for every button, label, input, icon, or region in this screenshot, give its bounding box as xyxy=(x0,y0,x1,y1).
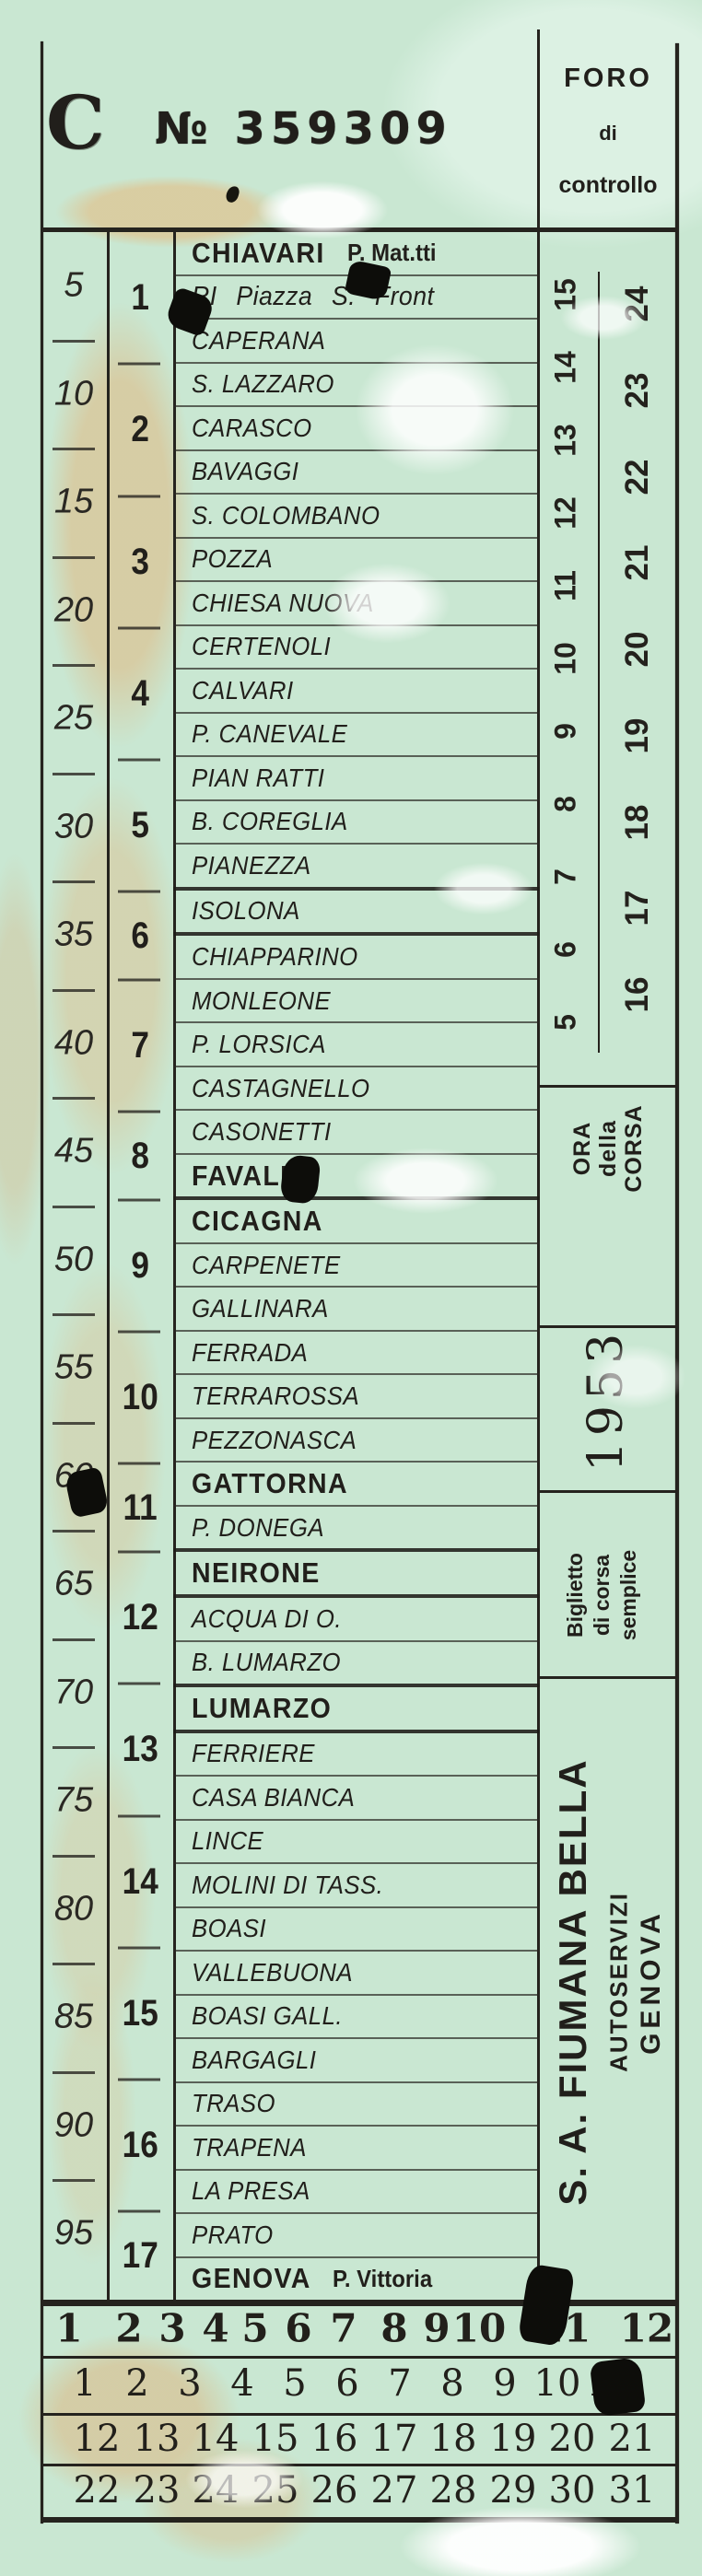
station-name: MONLEONE xyxy=(192,986,331,1016)
hour-mark-15: 15 xyxy=(549,278,583,311)
station-name: TRASO xyxy=(192,2089,275,2118)
station-row: CHIESA NUOVA xyxy=(173,582,540,626)
scale-number: 5 xyxy=(41,266,107,306)
hour-mark-21: 21 xyxy=(619,545,656,581)
station-row: PIANEZZA xyxy=(173,845,540,891)
station-name: TERRAROSSA xyxy=(192,1381,359,1411)
grid-number: 5 xyxy=(283,2362,306,2405)
scale-number: 80 xyxy=(41,1889,107,1929)
grid-number: 15 xyxy=(252,2418,299,2460)
grid-number: 25 xyxy=(252,2469,299,2512)
scale-tick xyxy=(53,1746,95,1749)
station-name: CHIAVARI xyxy=(192,237,325,270)
scale-number: 25 xyxy=(41,699,107,739)
zone-5: 5 xyxy=(107,760,173,892)
station-suffix: P. Vittoria xyxy=(333,2265,432,2293)
company-genova: GENOVA xyxy=(636,1909,667,2055)
station-row: B. LUMARZO xyxy=(173,1642,540,1688)
grid-number: 23 xyxy=(134,2469,181,2512)
grid-number: 27 xyxy=(371,2469,418,2512)
station-name: P. DONEGA xyxy=(192,1513,324,1543)
station-row: P. CANEVALE xyxy=(173,714,540,758)
station-name: GENOVA xyxy=(192,2262,311,2295)
station-name: B. LUMARZO xyxy=(192,1648,341,1677)
della-line: della xyxy=(595,1104,621,1192)
biglietto-line: Biglietto xyxy=(562,1550,589,1640)
grid-number: 12 xyxy=(620,2306,673,2351)
scale-tick xyxy=(53,773,95,775)
scale-number: 30 xyxy=(41,807,107,846)
station-row: VALLEBUONA xyxy=(173,1952,540,1996)
hour-mark-19: 19 xyxy=(619,717,656,753)
company-name: S. A. FIUMANA BELLA xyxy=(551,1758,595,2205)
scale-number: 65 xyxy=(41,1565,107,1604)
station-name: ISOLONA xyxy=(192,896,300,926)
station-name: CASONETTI xyxy=(192,1117,332,1147)
station-name: BOASI xyxy=(192,1914,266,1943)
station-name: CARASCO xyxy=(192,414,312,443)
grid-number: 10 xyxy=(452,2306,506,2351)
zone-14: 14 xyxy=(107,1816,173,1948)
grid-number: 20 xyxy=(549,2418,596,2460)
station-row: CAPERANA xyxy=(173,320,540,364)
scale-number: 40 xyxy=(41,1023,107,1063)
station-row: TERRAROSSA xyxy=(173,1375,540,1419)
right-column: ORA della CORSA 1953 Biglietto di corsa … xyxy=(540,232,676,2300)
hour-mark-24: 24 xyxy=(619,286,656,322)
semplice-line: semplice xyxy=(614,1550,641,1640)
station-name: LINCE xyxy=(192,1826,263,1856)
foro-label: FORO xyxy=(564,64,652,94)
scale-number: 15 xyxy=(41,483,107,522)
zone-number: 3 xyxy=(131,542,149,583)
hour-mark-14: 14 xyxy=(549,351,583,384)
ora-della-corsa-label: ORA della CORSA xyxy=(569,1104,647,1192)
hour-mark-18: 18 xyxy=(619,804,656,840)
scale-tick xyxy=(53,1422,95,1425)
station-row: CARPENETE xyxy=(173,1244,540,1288)
station-row: CASTAGNELLO xyxy=(173,1067,540,1112)
station-row: LUMARZO xyxy=(173,1687,540,1733)
station-name: NEIRONE xyxy=(192,1556,321,1590)
grid-number: 3 xyxy=(178,2362,201,2405)
zone-number: 2 xyxy=(131,409,149,450)
grid-number: 9 xyxy=(423,2306,450,2351)
hour-mark-11: 11 xyxy=(549,570,583,601)
station-name: MOLINI DI TASS. xyxy=(192,1871,383,1900)
station-name: LA PRESA xyxy=(192,2176,310,2206)
zone-number: 13 xyxy=(122,1729,158,1770)
di-corsa-line: di corsa xyxy=(589,1550,615,1640)
grid-number: 9 xyxy=(493,2362,516,2405)
station-name: CERTENOLI xyxy=(192,632,331,661)
station-name: VALLEBUONA xyxy=(192,1958,353,1987)
station-row: MOLINI DI TASS. xyxy=(173,1864,540,1908)
scale-tick xyxy=(53,2071,95,2074)
grid-number: 26 xyxy=(311,2469,358,2512)
station-row: P. LORSICA xyxy=(173,1023,540,1067)
station-row: CASA BIANCA xyxy=(173,1777,540,1821)
station-row: BOASI xyxy=(173,1908,540,1952)
scale-number: 85 xyxy=(41,1998,107,2037)
station-name: BAVAGGI xyxy=(192,457,298,486)
scale-number: 55 xyxy=(41,1348,107,1388)
zone-9: 9 xyxy=(107,1200,173,1332)
station-name: S. COLOMBANO xyxy=(192,501,380,530)
station-name: PEZZONASCA xyxy=(192,1426,357,1455)
station-name: POZZA xyxy=(192,544,273,574)
zone-12: 12 xyxy=(107,1552,173,1684)
grid-rule-2 xyxy=(41,2413,679,2416)
grid-number: 8 xyxy=(440,2362,463,2405)
scale-number: 35 xyxy=(41,915,107,955)
hour-mark-22: 22 xyxy=(619,459,656,495)
zone-16: 16 xyxy=(107,2080,173,2211)
punch-hole xyxy=(590,2357,647,2417)
station-name: P. LORSICA xyxy=(192,1030,326,1059)
station-name: B. COREGLIA xyxy=(192,807,348,836)
grid-number: 30 xyxy=(549,2469,596,2512)
zone-10: 10 xyxy=(107,1332,173,1463)
grid-number: 10 xyxy=(534,2362,581,2405)
station-name: ACQUA DI O. xyxy=(192,1604,342,1634)
scale-tick xyxy=(53,1855,95,1858)
foro-label-di: di xyxy=(599,122,617,146)
hour-mark-17: 17 xyxy=(619,891,656,927)
grid-number: 12 xyxy=(74,2418,121,2460)
station-row: ACQUA DI O. xyxy=(173,1598,540,1642)
grid-number: 22 xyxy=(74,2469,121,2512)
zone-13: 13 xyxy=(107,1684,173,1815)
scale-number: 50 xyxy=(41,1240,107,1279)
station-row: CHIAPPARINO xyxy=(173,936,540,980)
hour-mark-16: 16 xyxy=(619,977,656,1013)
zone-17: 17 xyxy=(107,2211,173,2300)
station-row: S. LAZZARO xyxy=(173,364,540,408)
station-name: LUMARZO xyxy=(192,1692,332,1725)
hour-mark-13: 13 xyxy=(549,424,583,457)
hour-mark-20: 20 xyxy=(619,632,656,668)
scale-number: 10 xyxy=(41,374,107,414)
station-row: P. DONEGA xyxy=(173,1507,540,1553)
scale-number: 90 xyxy=(41,2105,107,2145)
zone-11: 11 xyxy=(107,1463,173,1552)
station-name: GALLINARA xyxy=(192,1294,329,1323)
station-row: FERRADA xyxy=(173,1332,540,1376)
zone-number: 17 xyxy=(122,2235,158,2277)
serial-number: № 359309 xyxy=(155,103,452,155)
bus-ticket: C № 359309 FORO di controllo 51015202530… xyxy=(0,0,702,2576)
scale-number: 75 xyxy=(41,1781,107,1821)
zone-1: 1 xyxy=(107,232,173,364)
station-row: NEIRONE xyxy=(173,1552,540,1598)
grid-number: 7 xyxy=(388,2362,411,2405)
hour-mark-6: 6 xyxy=(549,941,583,958)
station-row: B. COREGLIA xyxy=(173,801,540,845)
grid-number: 24 xyxy=(193,2469,240,2512)
grid-bottom-rule xyxy=(41,2517,679,2523)
foro-label-controllo: controllo xyxy=(559,172,658,199)
scale-tick xyxy=(53,340,95,343)
biglietto-label: Biglietto di corsa semplice xyxy=(562,1550,641,1640)
station-row: PRATO xyxy=(173,2214,540,2258)
zone-number: 10 xyxy=(122,1377,158,1418)
grid-number: 1 xyxy=(55,2306,82,2351)
scale-number: 20 xyxy=(41,590,107,630)
scale-tick xyxy=(53,1097,95,1100)
grid-number: 13 xyxy=(134,2418,181,2460)
zone-number: 9 xyxy=(131,1245,149,1287)
company-autoservizi: AUTOSERVIZI xyxy=(605,1892,634,2072)
station-name: PRATO xyxy=(192,2220,274,2250)
zone-number: 16 xyxy=(122,2125,158,2166)
station-row: MONLEONE xyxy=(173,980,540,1024)
station-name: BOASI GALL. xyxy=(192,2001,343,2031)
ink-speck xyxy=(225,185,240,204)
serial-letter: C xyxy=(46,79,105,166)
station-name: CICAGNA xyxy=(192,1205,323,1238)
scale-tick xyxy=(53,664,95,667)
station-name: CHIAPPARINO xyxy=(192,942,358,972)
grid-number: 5 xyxy=(241,2306,268,2351)
station-row: PIAN RATTI xyxy=(173,757,540,801)
station-name: PIAN RATTI xyxy=(192,763,324,793)
grid-number: 6 xyxy=(335,2362,358,2405)
hour-mark-5: 5 xyxy=(549,1014,583,1031)
station-row: CICAGNA xyxy=(173,1200,540,1244)
scale-number: 95 xyxy=(41,2214,107,2254)
foro-di-controllo-box: FORO di controllo xyxy=(540,37,676,226)
corsa-line: CORSA xyxy=(621,1104,647,1192)
hour-mark-9: 9 xyxy=(549,723,583,740)
station-name: CHIESA NUOVA xyxy=(192,589,374,618)
scale-tick xyxy=(53,989,95,992)
scale-tick xyxy=(53,448,95,450)
grid-number: 19 xyxy=(490,2418,537,2460)
grid-number: 16 xyxy=(311,2418,358,2460)
grid-number: 2 xyxy=(115,2306,142,2351)
hour-mark-10: 10 xyxy=(549,642,583,675)
distance-scale-column: 5101520253035404550556065707580859095 xyxy=(41,232,107,2300)
scale-tick xyxy=(53,1206,95,1208)
station-name: CARPENETE xyxy=(192,1251,341,1280)
zone-8: 8 xyxy=(107,1112,173,1200)
station-name: TRAPENA xyxy=(192,2133,307,2162)
station-row: LINCE xyxy=(173,1821,540,1865)
grid-number: 6 xyxy=(285,2306,311,2351)
station-row: ISOLONA xyxy=(173,891,540,937)
station-row: S. COLOMBANO xyxy=(173,495,540,539)
grid-number: 18 xyxy=(430,2418,477,2460)
station-name: CALVARI xyxy=(192,676,294,705)
station-row: TRASO xyxy=(173,2083,540,2127)
station-row: CARASCO xyxy=(173,407,540,451)
year-label: 1953 xyxy=(579,1328,634,1472)
zone-number: 4 xyxy=(131,673,149,715)
station-row: POZZA xyxy=(173,539,540,583)
station-row: LA PRESA xyxy=(173,2171,540,2215)
grid-number: 17 xyxy=(371,2418,418,2460)
grid-rule-3 xyxy=(41,2464,679,2466)
grid-number: 14 xyxy=(193,2418,240,2460)
zone-number: 1 xyxy=(131,277,149,319)
station-list: CHIAVARIP. Mat.ttiRI Piazza S. FrontCAPE… xyxy=(173,232,540,2300)
grid-number: 4 xyxy=(230,2362,253,2405)
station-row: CERTENOLI xyxy=(173,626,540,670)
station-row: BOASI GALL. xyxy=(173,1996,540,2040)
grid-number: 29 xyxy=(490,2469,537,2512)
grid-number: 3 xyxy=(158,2306,185,2351)
station-name: PIANEZZA xyxy=(192,851,311,880)
station-row: GATTORNA xyxy=(173,1463,540,1507)
station-name: FERRADA xyxy=(192,1338,308,1368)
grid-number: 21 xyxy=(609,2418,656,2460)
station-name: CAPERANA xyxy=(192,326,325,356)
hour-mark-12: 12 xyxy=(549,496,583,530)
station-name: GATTORNA xyxy=(192,1467,348,1500)
station-row: CASONETTI xyxy=(173,1111,540,1155)
scale-tick xyxy=(53,1530,95,1533)
hour-mark-7: 7 xyxy=(549,868,583,885)
grid-number: 7 xyxy=(330,2306,357,2351)
grid-number: 8 xyxy=(380,2306,407,2351)
station-row: CALVARI xyxy=(173,670,540,714)
scale-tick xyxy=(53,1313,95,1316)
grid-number: 4 xyxy=(202,2306,228,2351)
zone-number: 7 xyxy=(131,1025,149,1067)
zone-3: 3 xyxy=(107,496,173,628)
scale-number: 45 xyxy=(41,1132,107,1171)
scale-tick xyxy=(53,1963,95,1965)
zone-number: 14 xyxy=(122,1861,158,1903)
station-row: BAVAGGI xyxy=(173,451,540,495)
hour-mark-23: 23 xyxy=(619,372,656,408)
zone-number: 5 xyxy=(131,805,149,846)
zone-7: 7 xyxy=(107,980,173,1112)
station-name: CASA BIANCA xyxy=(192,1783,355,1813)
grid-top-rule xyxy=(41,2300,679,2306)
zone-column: 1234567891011121314151617 xyxy=(107,232,173,2300)
station-name: BARGAGLI xyxy=(192,2046,316,2075)
station-name: RI Piazza S. Front xyxy=(192,282,434,312)
station-row: PEZZONASCA xyxy=(173,1419,540,1463)
station-name: P. CANEVALE xyxy=(192,719,347,749)
scale-tick xyxy=(53,556,95,559)
zone-4: 4 xyxy=(107,628,173,760)
scale-number: 70 xyxy=(41,1673,107,1712)
station-name: CASTAGNELLO xyxy=(192,1074,370,1103)
zone-number: 8 xyxy=(131,1136,149,1177)
station-row: BARGAGLI xyxy=(173,2039,540,2083)
zone-2: 2 xyxy=(107,364,173,495)
station-row: GALLINARA xyxy=(173,1288,540,1332)
hour-mark-8: 8 xyxy=(549,796,583,812)
scale-tick xyxy=(53,1638,95,1641)
zone-number: 15 xyxy=(122,1993,158,2034)
grid-number: 31 xyxy=(609,2469,656,2512)
grid-number: 28 xyxy=(430,2469,477,2512)
grid-rule-1 xyxy=(41,2356,679,2359)
scale-tick xyxy=(53,2179,95,2182)
station-name: S. LAZZARO xyxy=(192,369,334,399)
grid-number: 2 xyxy=(125,2362,148,2405)
zone-6: 6 xyxy=(107,892,173,980)
ora-line: ORA xyxy=(569,1104,595,1192)
station-row: FAVALE xyxy=(173,1155,540,1201)
zone-number: 12 xyxy=(122,1597,158,1638)
station-name: FERRIERE xyxy=(192,1739,315,1768)
scale-tick xyxy=(53,880,95,883)
zone-number: 11 xyxy=(123,1487,157,1529)
station-row: FERRIERE xyxy=(173,1733,540,1778)
zone-15: 15 xyxy=(107,1948,173,2080)
grid-number: 1 xyxy=(73,2362,96,2405)
station-row: TRAPENA xyxy=(173,2127,540,2171)
station-row: GENOVAP. Vittoria xyxy=(173,2258,540,2301)
zone-number: 6 xyxy=(131,915,149,957)
